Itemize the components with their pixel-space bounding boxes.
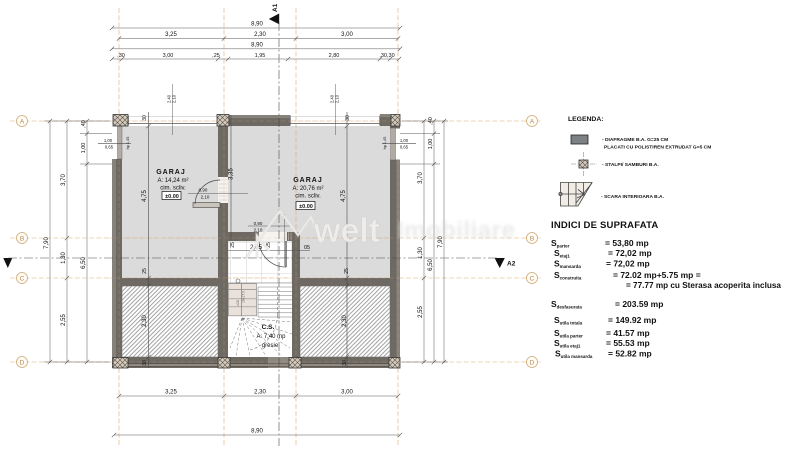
svg-text:= 53,80 mp: = 53,80 mp (605, 238, 649, 248)
svg-text:,40: ,40 (81, 120, 87, 128)
svg-text:8,90: 8,90 (251, 42, 263, 48)
svg-text:2,55: 2,55 (418, 306, 424, 318)
svg-text:0,65: 0,65 (400, 145, 409, 150)
svg-text:7,90: 7,90 (44, 237, 50, 249)
svg-text:x28: x28 (236, 300, 240, 306)
svg-text:3,25: 3,25 (165, 32, 177, 38)
svg-text:A: A (530, 119, 535, 126)
svg-text:D: D (530, 360, 535, 367)
svg-text:4,75: 4,75 (341, 190, 347, 202)
svg-text:3,35: 3,35 (229, 168, 235, 180)
svg-text:3,70: 3,70 (61, 174, 67, 186)
svg-text:3,25: 3,25 (165, 390, 177, 396)
svg-text:B: B (20, 236, 24, 243)
svg-text:D: D (20, 360, 25, 367)
svg-text:,30,30: ,30,30 (379, 53, 394, 59)
svg-text:1,00: 1,00 (428, 139, 434, 150)
svg-text:30: 30 (142, 360, 148, 366)
svg-text:0,90: 0,90 (254, 221, 263, 226)
svg-text:1,00: 1,00 (400, 138, 409, 143)
svg-text:,40: ,40 (428, 117, 434, 125)
svg-text:30: 30 (342, 360, 348, 366)
svg-text:Imobiliare: Imobiliare (397, 217, 515, 244)
svg-text:3,00: 3,00 (341, 32, 353, 38)
svg-text:= 72,02 mp: = 72,02 mp (606, 259, 650, 269)
svg-text:2,30: 2,30 (142, 315, 148, 327)
svg-text:1,30: 1,30 (61, 252, 67, 264)
svg-text:1,00: 1,00 (81, 143, 87, 154)
svg-text:INDICI DE SUPRAFATA: INDICI DE SUPRAFATA (551, 220, 658, 231)
svg-text:2,30: 2,30 (254, 32, 266, 38)
svg-text:2,30: 2,30 (342, 315, 348, 327)
svg-text:2,55: 2,55 (61, 314, 67, 326)
svg-text:25: 25 (142, 268, 148, 274)
svg-text:0,90: 0,90 (199, 188, 208, 193)
svg-text:B: B (530, 236, 534, 243)
svg-text:3,00: 3,00 (341, 390, 353, 396)
svg-text:6,50: 6,50 (428, 259, 434, 271)
svg-text:4,75: 4,75 (142, 190, 148, 202)
svg-text:- SCARA INTERIOARA B.A.: - SCARA INTERIOARA B.A. (601, 194, 665, 200)
svg-text:= 203.59 mp: = 203.59 mp (615, 299, 663, 309)
svg-text:PLACATI CU POLISTIREN EXTRUDAT: PLACATI CU POLISTIREN EXTRUDAT G=5 CM (604, 145, 711, 151)
svg-text:cim. scliv.: cim. scliv. (295, 194, 321, 200)
svg-text:1,00: 1,00 (104, 138, 113, 143)
svg-text:- STALPI/ SAMBURI B.A.: - STALPI/ SAMBURI B.A. (602, 162, 659, 168)
svg-text:= 149.92 mp: = 149.92 mp (608, 315, 656, 325)
svg-text:6,50: 6,50 (81, 257, 87, 269)
svg-text:±0.00: ±0.00 (165, 194, 179, 200)
svg-text:- DIAFRAGME B.A. G=25 CM: - DIAFRAGME B.A. G=25 CM (602, 137, 668, 143)
svg-text:A: A (20, 119, 25, 126)
svg-text:C: C (530, 276, 535, 283)
svg-text:C: C (20, 276, 25, 283)
svg-text:A: 7,40 mp: A: 7,40 mp (256, 334, 286, 340)
svg-text:hp 1,45: hp 1,45 (383, 137, 387, 150)
svg-text:,30: ,30 (117, 53, 125, 59)
svg-text:= 72,02 mp: = 72,02 mp (608, 248, 652, 258)
svg-text:A: 20,76 m²: A: 20,76 m² (292, 186, 323, 192)
svg-text:2,10: 2,10 (335, 94, 340, 103)
svg-text:0,65: 0,65 (105, 145, 114, 150)
svg-text:gresie: gresie (262, 343, 279, 349)
svg-text:A2: A2 (507, 261, 516, 268)
svg-text:= 72.02 mp+5.75 mp =: = 72.02 mp+5.75 mp = (613, 270, 701, 280)
svg-text:2,10: 2,10 (254, 228, 263, 233)
svg-text:A: 14,24 m²: A: 14,24 m² (157, 178, 188, 184)
svg-text:1,95: 1,95 (255, 53, 266, 59)
svg-text:= 41.57 mp: = 41.57 mp (606, 328, 650, 338)
svg-text:16x17,5: 16x17,5 (242, 291, 246, 303)
svg-text:8,90: 8,90 (251, 429, 263, 435)
svg-text:3,00: 3,00 (163, 53, 174, 59)
svg-text:,25: ,25 (212, 53, 220, 59)
svg-text:hp 1,45: hp 1,45 (126, 137, 130, 150)
svg-text:2,10: 2,10 (201, 195, 210, 200)
svg-text:25: 25 (230, 242, 236, 248)
svg-text:2,80: 2,80 (329, 53, 340, 59)
svg-text:welt: welt (313, 212, 380, 250)
svg-text:C.S.: C.S. (262, 324, 275, 331)
svg-text:2,10: 2,10 (172, 94, 177, 103)
svg-text:25: 25 (344, 268, 350, 274)
svg-text:30: 30 (142, 115, 148, 121)
svg-text:3,70: 3,70 (418, 172, 424, 184)
svg-text:05: 05 (304, 245, 310, 251)
svg-text:1,30: 1,30 (418, 247, 424, 259)
svg-text:±0.00: ±0.00 (299, 204, 313, 210)
svg-text:8,90: 8,90 (251, 22, 263, 28)
svg-text:2,30: 2,30 (254, 390, 266, 396)
svg-text:GARAJ: GARAJ (293, 177, 323, 184)
svg-text:A1: A1 (272, 3, 279, 12)
svg-text:GARAJ: GARAJ (156, 169, 186, 176)
svg-text:= 55.53 mp: = 55.53 mp (606, 338, 650, 348)
svg-text:= 77.77 mp cu Sterasa acoperit: = 77.77 mp cu Sterasa acoperita inclusa (626, 281, 781, 290)
svg-text:= 52.82 mp: = 52.82 mp (608, 349, 652, 359)
svg-text:cim. scliv.: cim. scliv. (160, 186, 186, 192)
svg-text:LEGENDA:: LEGENDA: (568, 116, 604, 123)
svg-text:30: 30 (345, 115, 351, 121)
